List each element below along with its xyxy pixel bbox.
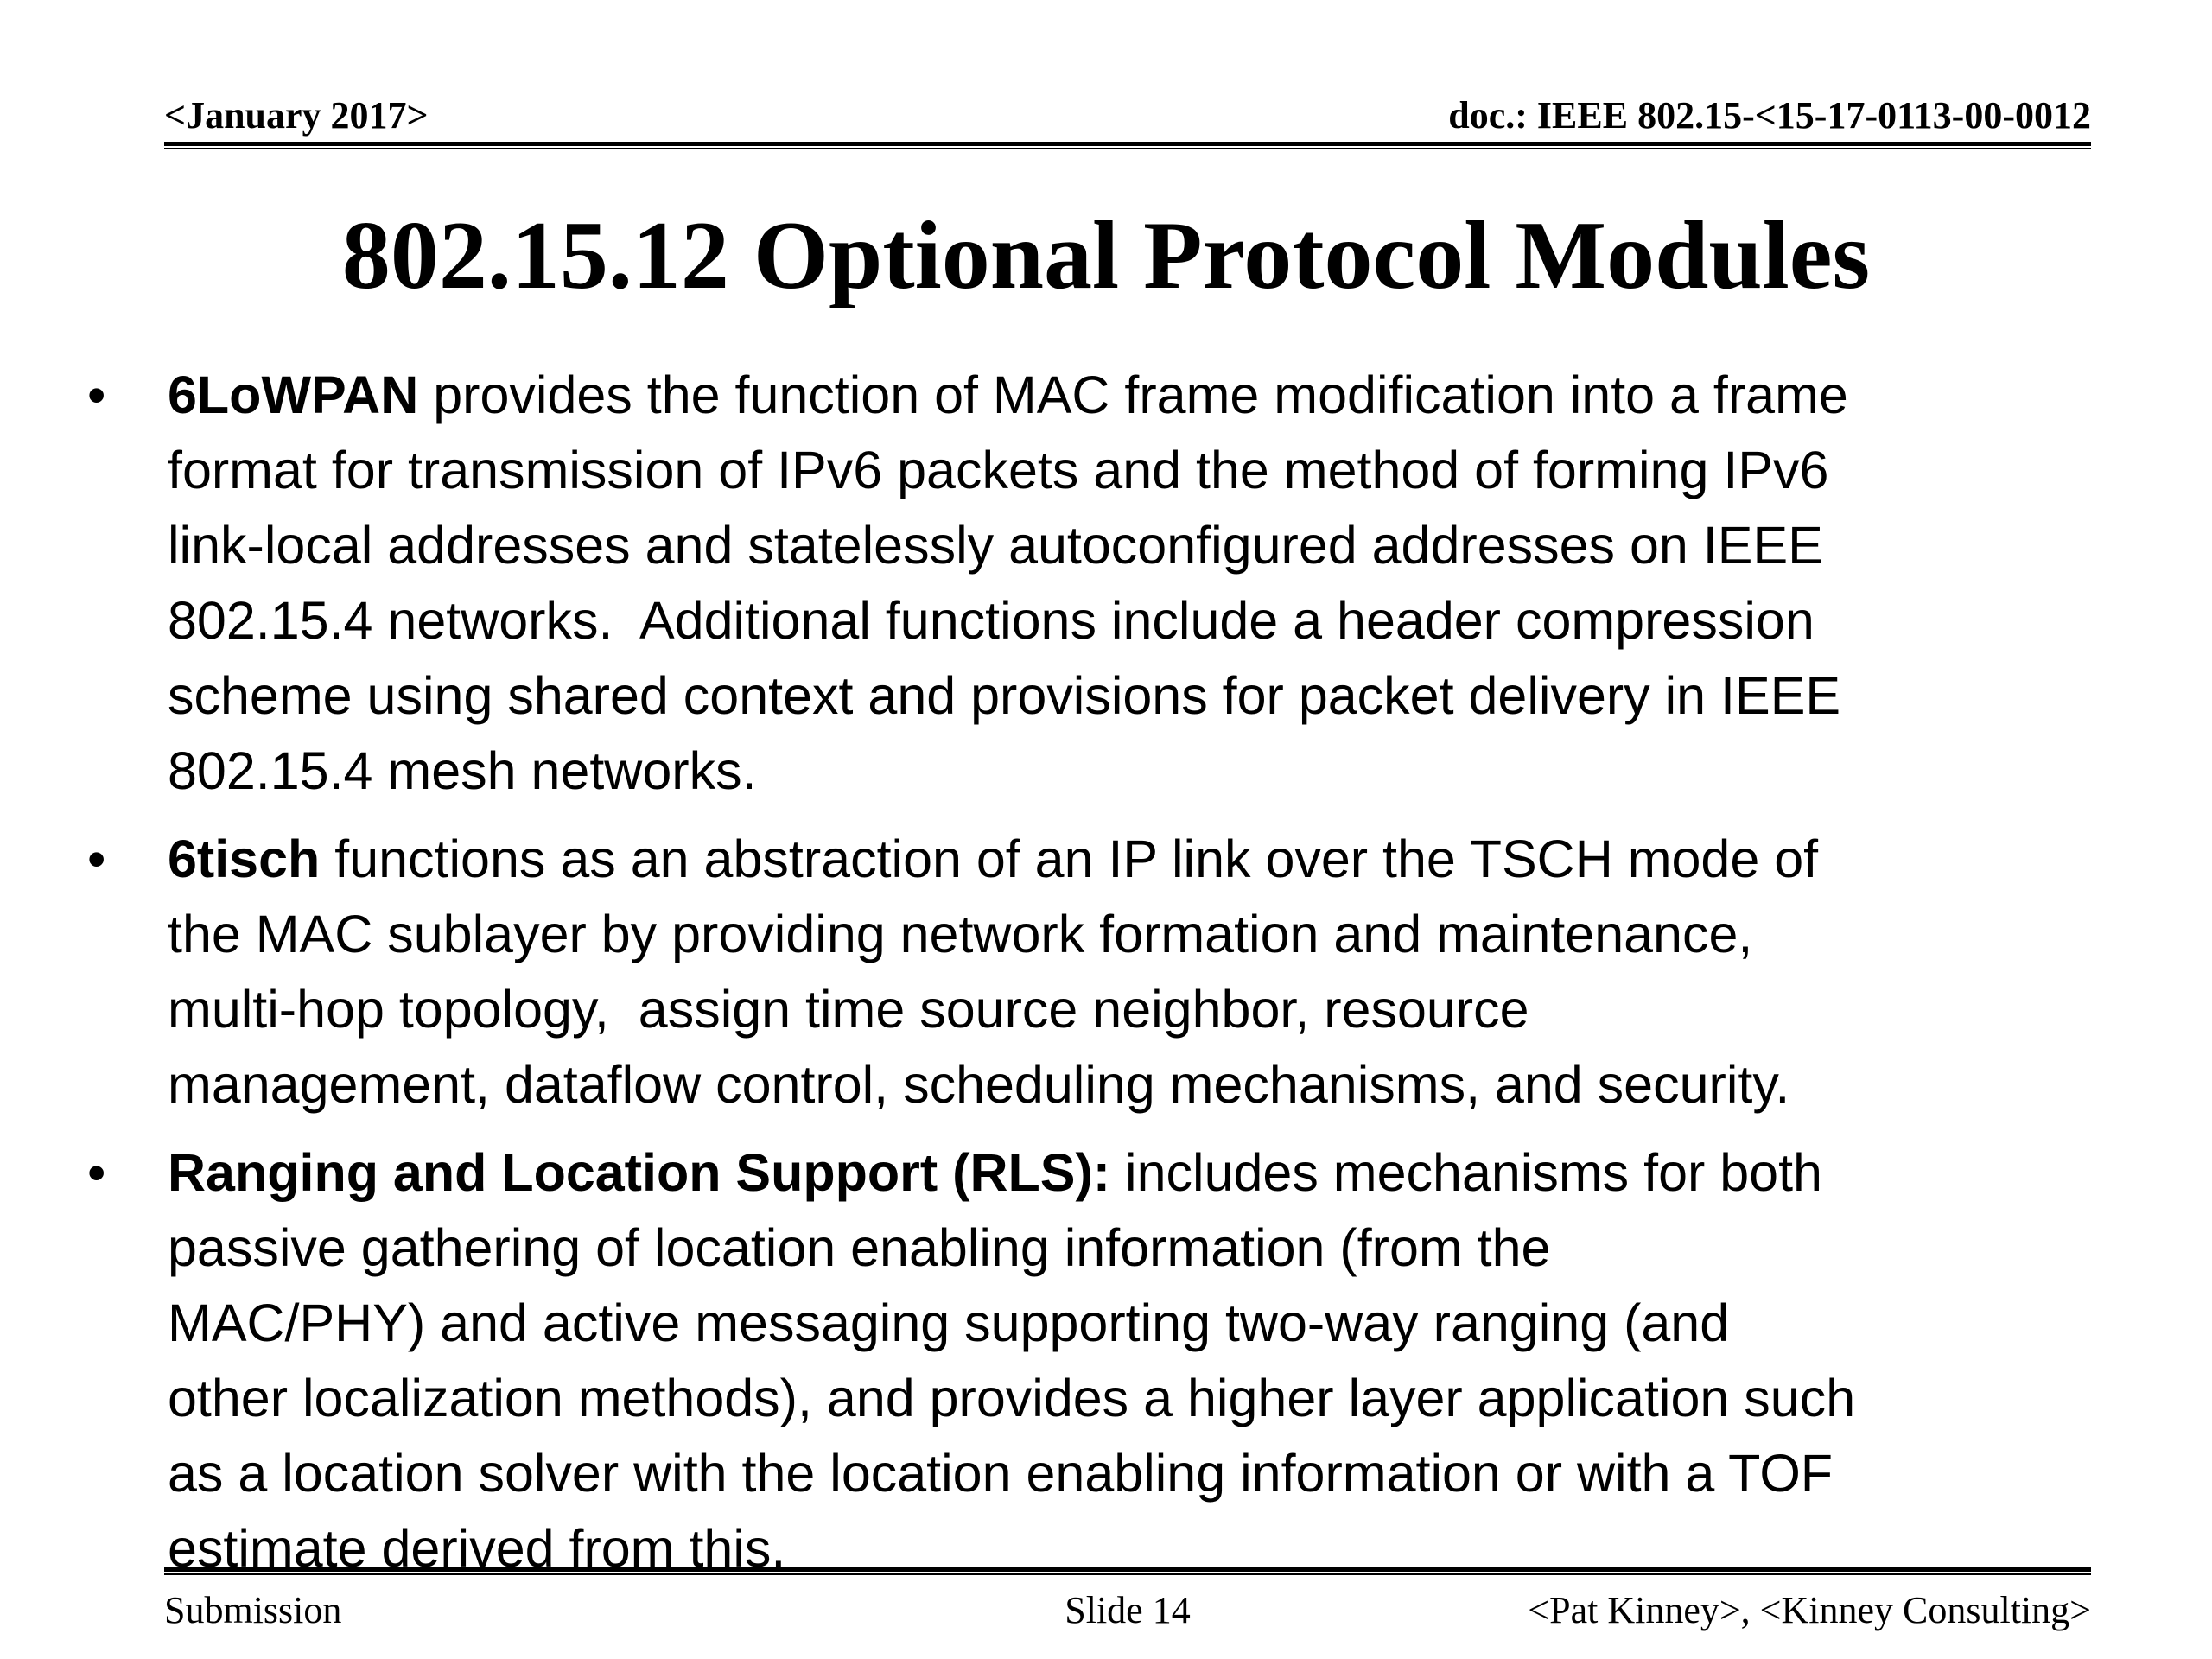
- slide-title: 802.15.12 Optional Protocol Modules: [143, 195, 2069, 316]
- slide-header: <January 2017> doc.: IEEE 802.15-<15-17-…: [164, 93, 2091, 138]
- bullet-rest-text: functions as an abstraction of an IP lin…: [168, 829, 1818, 1114]
- bullet-icon: •: [84, 358, 168, 809]
- bullet-item-6lowpan: • 6LoWPAN provides the function of MAC f…: [84, 358, 2183, 809]
- slide-canvas: <January 2017> doc.: IEEE 802.15-<15-17-…: [0, 0, 2212, 1659]
- bullet-icon: •: [84, 1135, 168, 1586]
- bullet-rest-text: provides the function of MAC frame modif…: [168, 365, 1848, 800]
- bullet-body-text: 6LoWPAN provides the function of MAC fra…: [168, 358, 2183, 809]
- bullet-item-6tisch: • 6tisch functions as an abstraction of …: [84, 822, 2183, 1122]
- bullet-body-text: Ranging and Location Support (RLS): incl…: [168, 1135, 2183, 1586]
- bullet-body-text: 6tisch functions as an abstraction of an…: [168, 822, 2183, 1122]
- footer-rule: [164, 1567, 2091, 1575]
- header-date: <January 2017>: [164, 93, 429, 138]
- footer-submission-label: Submission: [164, 1586, 806, 1635]
- footer-slide-number: Slide 14: [806, 1586, 1448, 1635]
- bullet-emphasis: 6tisch: [168, 829, 320, 888]
- bullet-emphasis: 6LoWPAN: [168, 365, 418, 424]
- header-rule: [164, 142, 2091, 149]
- bullet-icon: •: [84, 822, 168, 1122]
- bullet-item-rls: • Ranging and Location Support (RLS): in…: [84, 1135, 2183, 1586]
- bullet-emphasis: Ranging and Location Support (RLS):: [168, 1143, 1110, 1202]
- bullet-list: • 6LoWPAN provides the function of MAC f…: [84, 358, 2183, 1586]
- bullet-rest-text: includes mechanisms for both passive gat…: [168, 1143, 1855, 1578]
- footer-authors: <Pat Kinney>, <Kinney Consulting>: [1449, 1586, 2091, 1635]
- header-doc-number: doc.: IEEE 802.15-<15-17-0113-00-0012: [1448, 93, 2091, 138]
- slide-footer: Submission Slide 14 <Pat Kinney>, <Kinne…: [164, 1586, 2091, 1635]
